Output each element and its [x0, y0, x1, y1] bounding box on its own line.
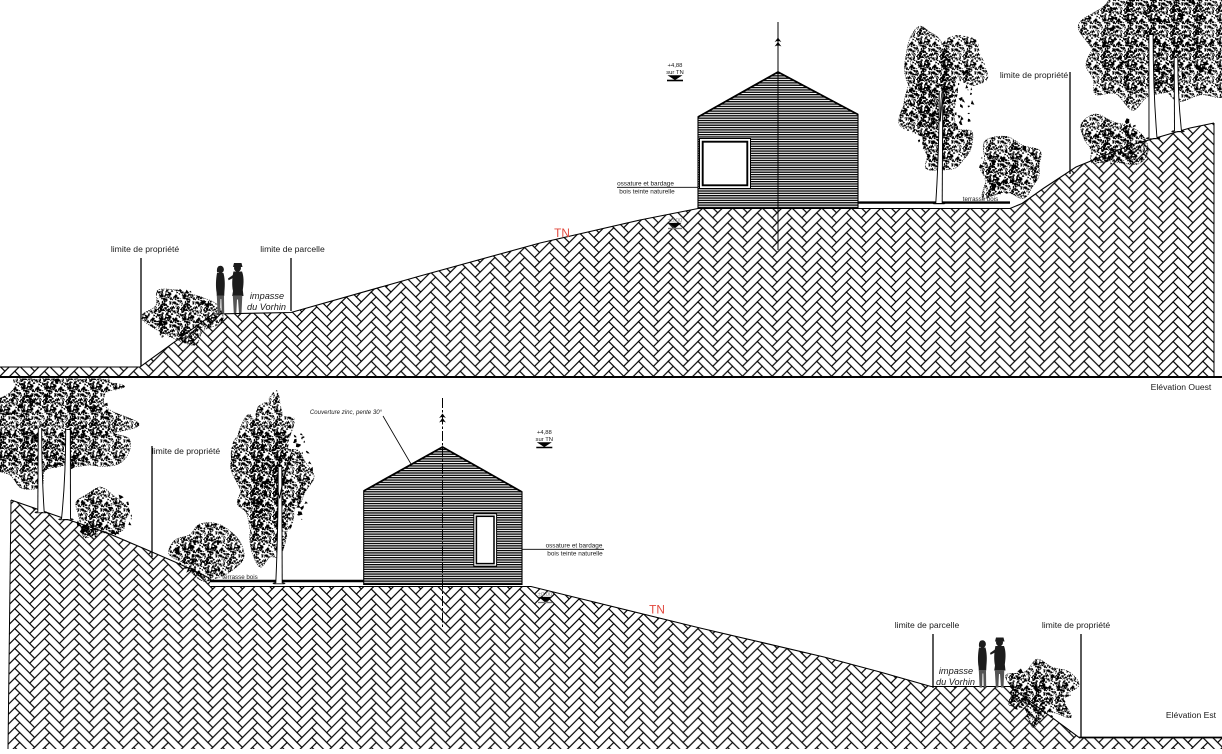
svg-text:terrasse bois: terrasse bois [222, 574, 257, 581]
svg-text:Elévation Est: Elévation Est [1166, 710, 1217, 720]
svg-text:Couverture zinc, pente 30°: Couverture zinc, pente 30° [310, 409, 383, 416]
svg-text:+4,88: +4,88 [537, 430, 553, 436]
svg-text:limite de propriété: limite de propriété [152, 446, 221, 456]
svg-text:bois teinte naturelle: bois teinte naturelle [547, 551, 603, 558]
svg-text:du Vorhin: du Vorhin [247, 302, 286, 312]
svg-text:limite de parcelle: limite de parcelle [895, 620, 960, 630]
svg-text:limite de propriété: limite de propriété [111, 244, 180, 254]
svg-text:ossature et bardage: ossature et bardage [617, 181, 674, 188]
svg-text:+4,88: +4,88 [668, 63, 684, 69]
svg-text:limite de propriété: limite de propriété [1000, 70, 1069, 80]
svg-text:Elévation Ouest: Elévation Ouest [1151, 382, 1212, 392]
svg-text:impasse: impasse [250, 291, 284, 301]
svg-text:bois teinte naturelle: bois teinte naturelle [619, 189, 675, 196]
svg-text:sur TN: sur TN [666, 70, 684, 76]
svg-text:du Vorhin: du Vorhin [936, 677, 975, 687]
svg-text:terrasse bois: terrasse bois [963, 196, 998, 203]
svg-text:limite de parcelle: limite de parcelle [260, 244, 325, 254]
svg-text:TN: TN [554, 226, 570, 240]
svg-text:TN: TN [649, 603, 665, 617]
svg-text:sur TN: sur TN [536, 437, 554, 443]
svg-text:impasse: impasse [939, 666, 973, 676]
svg-text:limite de propriété: limite de propriété [1042, 620, 1111, 630]
svg-text:ossature et bardage: ossature et bardage [546, 543, 603, 550]
